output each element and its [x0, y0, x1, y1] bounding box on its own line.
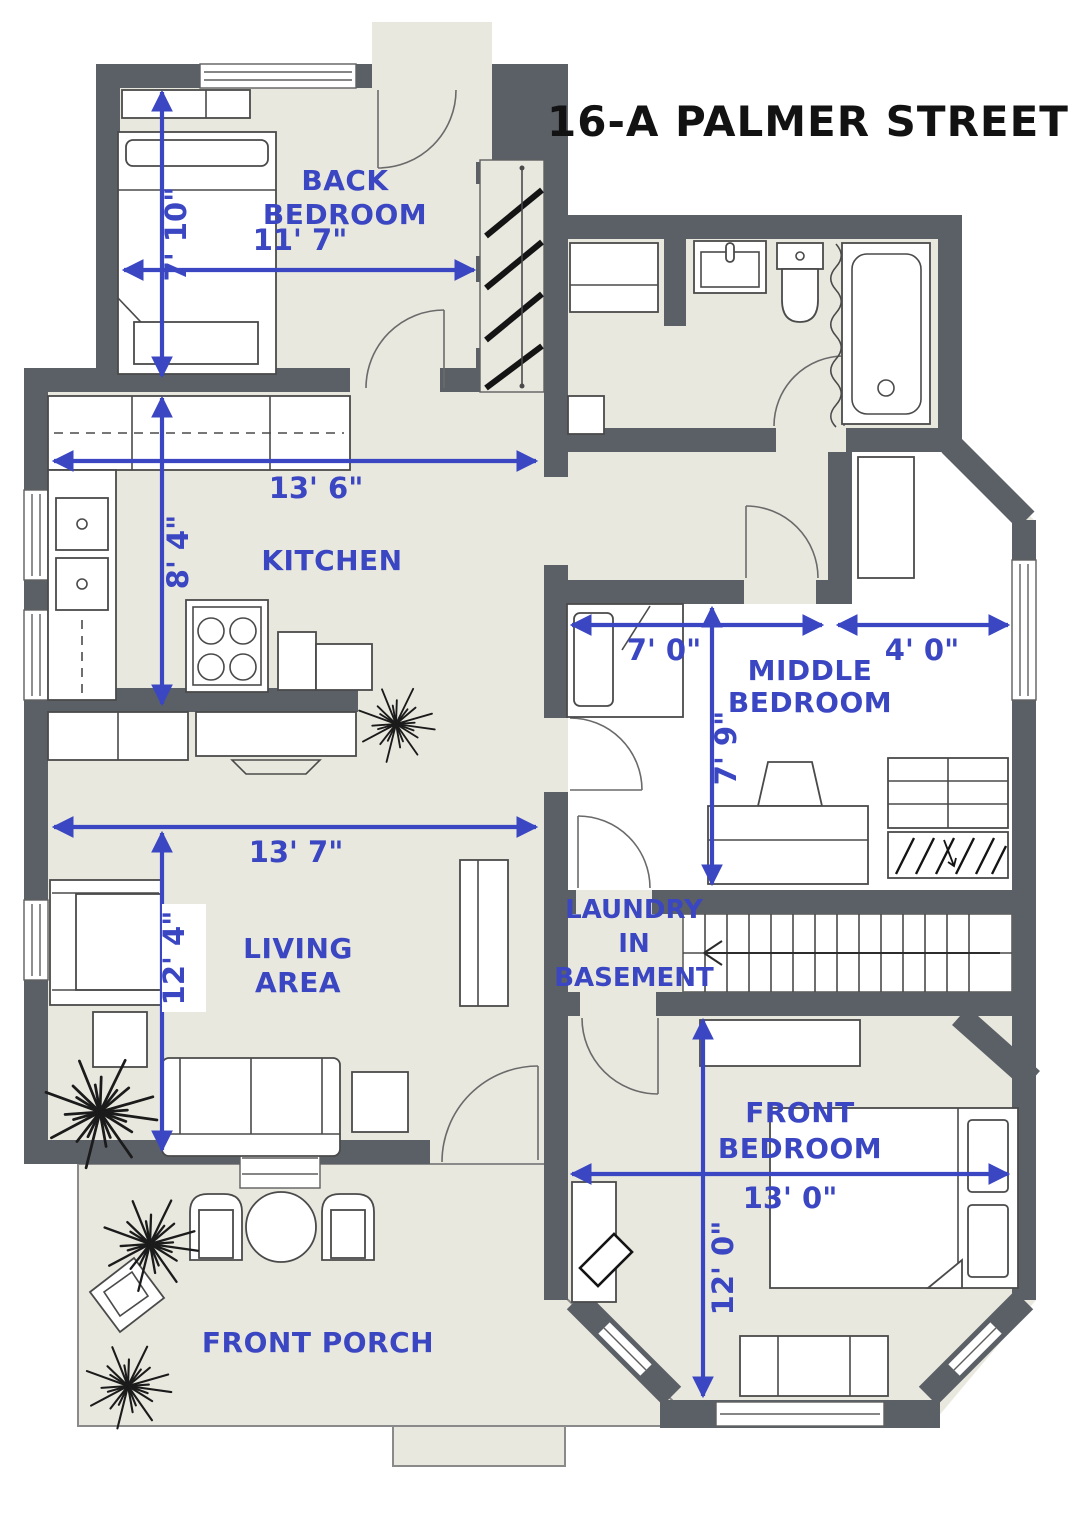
- bathtub: [842, 243, 930, 424]
- closet-shelf: [700, 1020, 860, 1066]
- dim-back-bedroom-width: 11' 7": [253, 223, 348, 257]
- living-window: [24, 900, 48, 980]
- dim-middle-bedroom-height: 7' 9": [709, 711, 743, 785]
- stairs-to-upper-floor: [480, 160, 544, 392]
- dim-kitchen-width: 13' 6": [269, 471, 364, 505]
- dim-back-bedroom-height: 7' 10": [159, 187, 193, 282]
- bookcase: [460, 860, 508, 1006]
- floor-plan-page: 16-A PALMER STREET BACK BEDROOM KITCHEN …: [0, 0, 1080, 1520]
- kitchen-cart-side: [316, 644, 372, 690]
- floor-plan-drawing: 16-A PALMER STREET BACK BEDROOM KITCHEN …: [0, 0, 1080, 1520]
- living-area-label-2: AREA: [255, 966, 341, 999]
- porch-table: [246, 1192, 316, 1262]
- laundry-label-1: LAUNDRY: [565, 895, 704, 925]
- sink-basin-lower: [56, 558, 108, 610]
- kitchen-window-upper: [24, 490, 48, 580]
- kitchen-label: KITCHEN: [261, 544, 402, 577]
- wardrobe: [858, 457, 914, 578]
- kitchen-window-lower: [24, 610, 48, 700]
- front-bedroom-label-2: BEDROOM: [718, 1132, 882, 1165]
- dim-kitchen-height: 8' 4": [161, 515, 195, 589]
- chest-of-drawers: [888, 758, 1008, 828]
- back-bedroom-label-1: BACK: [301, 164, 389, 197]
- side-table: [93, 1012, 147, 1067]
- dim-living-width: 13' 7": [249, 835, 344, 869]
- blanket-chest: [134, 322, 258, 364]
- window-bench: [740, 1336, 888, 1396]
- kitchen-cart: [278, 632, 316, 690]
- hall-cabinet: [570, 243, 658, 312]
- middle-bedroom-label-1: MIDDLE: [748, 654, 873, 687]
- living-area-label-1: LIVING: [243, 932, 353, 965]
- dim-living-height: 12' 4": [157, 911, 191, 1006]
- armchair: [50, 880, 163, 1005]
- back-bedroom-window: [200, 64, 356, 88]
- middle-bedroom-window: [1012, 560, 1036, 700]
- tv-console: [196, 712, 356, 756]
- porch-chair-right: [322, 1194, 374, 1260]
- stove: [186, 600, 268, 692]
- stairs-to-basement: [683, 914, 1012, 992]
- dim-front-bedroom-width: 13' 0": [743, 1181, 838, 1215]
- porch-entry-step: [393, 1426, 565, 1466]
- laundry-label-2: IN: [618, 929, 649, 959]
- dim-middle-bedroom-left-width: 7' 0": [627, 633, 701, 667]
- dim-middle-bedroom-right-width: 4' 0": [885, 633, 959, 667]
- toilet: [777, 243, 823, 322]
- sink-basin-upper: [56, 498, 108, 550]
- front-porch-label: FRONT PORCH: [202, 1326, 434, 1359]
- front-bedroom-label-1: FRONT: [745, 1096, 855, 1129]
- dresser: [122, 90, 250, 118]
- sofa: [162, 1058, 340, 1156]
- laundry-label-3: BASEMENT: [554, 963, 714, 993]
- page-title: 16-A PALMER STREET: [547, 97, 1069, 146]
- radiator-grate: [888, 832, 1008, 878]
- middle-bedroom-label-2: BEDROOM: [728, 686, 892, 719]
- coffee-table: [352, 1072, 408, 1132]
- hall-shelf: [568, 396, 604, 434]
- dim-front-bedroom-height: 12' 0": [706, 1221, 740, 1316]
- bathroom-sink: [694, 241, 766, 293]
